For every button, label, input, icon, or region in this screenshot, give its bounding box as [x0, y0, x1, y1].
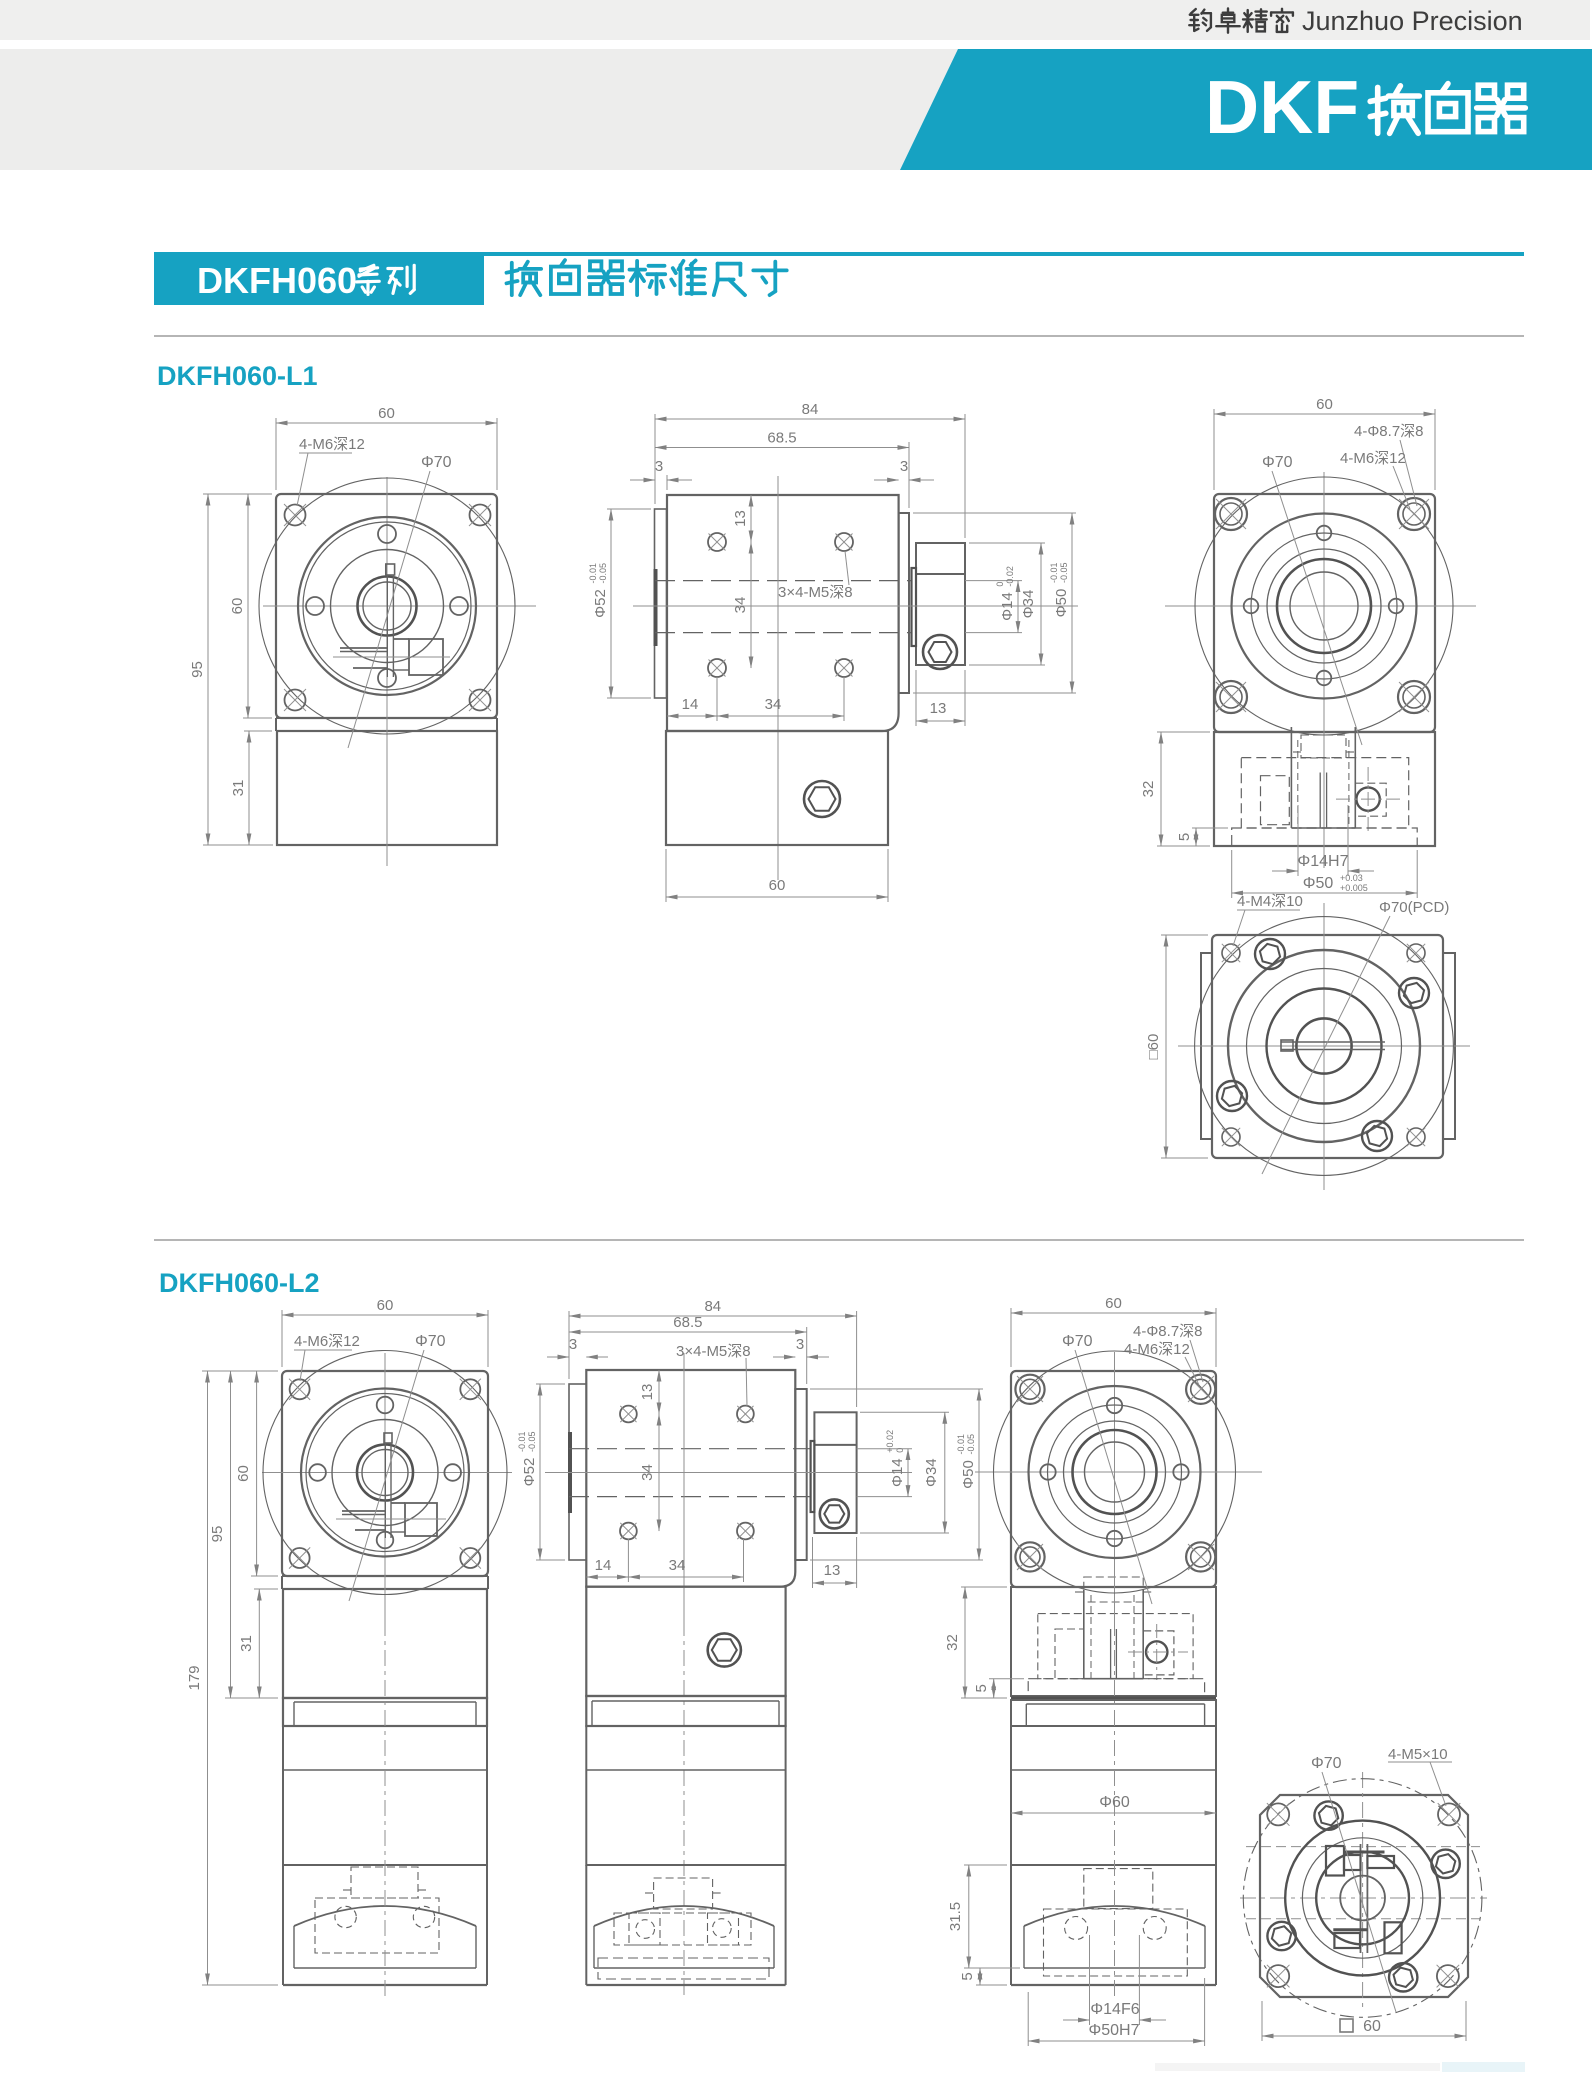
svg-text:Φ70: Φ70	[1311, 1755, 1342, 1772]
svg-text:+0.03: +0.03	[1340, 873, 1363, 883]
svg-text:4-M4深10: 4-M4深10	[1237, 893, 1303, 910]
svg-text:32: 32	[944, 1634, 961, 1651]
svg-text:Φ50H7: Φ50H7	[1088, 2022, 1139, 2039]
svg-text:32: 32	[1140, 781, 1157, 798]
svg-text:95: 95	[189, 661, 206, 678]
svg-text:-0.01: -0.01	[517, 1431, 527, 1452]
svg-text:34: 34	[765, 696, 782, 713]
svg-text:31: 31	[230, 780, 247, 797]
svg-text:4-M5×10: 4-M5×10	[1388, 1746, 1448, 1763]
svg-text:-0.01: -0.01	[956, 1434, 966, 1455]
svg-text:13: 13	[732, 510, 749, 527]
svg-text:4-Φ8.7深8: 4-Φ8.7深8	[1354, 423, 1424, 440]
svg-text:13: 13	[824, 1562, 841, 1579]
svg-text:68.5: 68.5	[673, 1314, 702, 1331]
svg-text:Φ14H7: Φ14H7	[1297, 853, 1348, 870]
svg-text:60: 60	[1105, 1295, 1122, 1312]
svg-text:60: 60	[378, 405, 395, 422]
svg-text:60: 60	[235, 1465, 252, 1482]
svg-text:Φ50: Φ50	[1053, 589, 1070, 618]
svg-text:84: 84	[704, 1298, 721, 1315]
svg-text:-0.01: -0.01	[1049, 562, 1059, 583]
svg-text:Φ50: Φ50	[960, 1460, 977, 1489]
svg-text:34: 34	[639, 1464, 656, 1481]
svg-text:3: 3	[796, 1336, 804, 1353]
svg-text:60: 60	[377, 1297, 394, 1314]
svg-text:13: 13	[639, 1384, 656, 1401]
svg-text:60: 60	[1363, 2018, 1381, 2035]
svg-text:-0.05: -0.05	[966, 1434, 976, 1455]
svg-text:34: 34	[669, 1557, 686, 1574]
svg-text:Φ70(PCD): Φ70(PCD)	[1379, 899, 1449, 916]
svg-text:Φ70: Φ70	[421, 454, 452, 471]
svg-text:Φ52: Φ52	[592, 589, 609, 618]
svg-text:4-M6深12: 4-M6深12	[1340, 450, 1406, 467]
svg-text:14: 14	[682, 696, 699, 713]
svg-text:DKFH060-L2: DKFH060-L2	[159, 1268, 320, 1298]
svg-text:DKFH060-L1: DKFH060-L1	[157, 361, 318, 391]
svg-text:34: 34	[732, 597, 749, 614]
svg-text:4-Φ8.7深8: 4-Φ8.7深8	[1133, 1323, 1203, 1340]
svg-text:Φ14F6: Φ14F6	[1090, 2001, 1139, 2018]
svg-text:-0.05: -0.05	[527, 1431, 537, 1452]
svg-text:Φ34: Φ34	[1020, 590, 1037, 619]
svg-text:60: 60	[1316, 396, 1333, 413]
svg-text:-0.02: -0.02	[1005, 566, 1015, 587]
svg-text:5: 5	[973, 1684, 990, 1692]
svg-text:Φ70: Φ70	[1062, 1333, 1093, 1350]
svg-text:Φ50: Φ50	[1303, 875, 1334, 892]
svg-text:13: 13	[930, 700, 947, 717]
svg-text:4-M6深12: 4-M6深12	[294, 1333, 360, 1350]
svg-text:68.5: 68.5	[767, 430, 796, 447]
svg-text:3: 3	[655, 458, 663, 475]
svg-text:84: 84	[802, 401, 819, 418]
svg-text:Φ60: Φ60	[1099, 1794, 1130, 1811]
svg-text:Φ70: Φ70	[1262, 454, 1293, 471]
svg-text:3: 3	[569, 1336, 577, 1353]
svg-text:0: 0	[995, 582, 1005, 587]
svg-text:3: 3	[900, 458, 908, 475]
svg-text:60: 60	[229, 598, 246, 615]
svg-text:Junzhuo Precision: Junzhuo Precision	[1302, 6, 1523, 36]
svg-text:5: 5	[1176, 833, 1193, 841]
svg-text:+0.005: +0.005	[1340, 883, 1368, 893]
svg-text:14: 14	[595, 1557, 612, 1574]
svg-text:5: 5	[959, 1972, 976, 1980]
svg-text:Φ34: Φ34	[923, 1458, 940, 1487]
svg-text:31: 31	[238, 1635, 255, 1652]
svg-text:95: 95	[209, 1526, 226, 1543]
svg-text:179: 179	[186, 1665, 203, 1690]
svg-text:Φ14: Φ14	[889, 1458, 906, 1487]
svg-text:-0.01: -0.01	[588, 563, 598, 584]
svg-text:31.5: 31.5	[947, 1902, 964, 1931]
svg-text:3×4-M5深8: 3×4-M5深8	[676, 1343, 751, 1360]
svg-text:4-M6深12: 4-M6深12	[1124, 1341, 1190, 1358]
svg-text:0: 0	[895, 1448, 905, 1453]
svg-text:Φ70: Φ70	[415, 1333, 446, 1350]
svg-text:60: 60	[769, 877, 786, 894]
svg-text:-0.05: -0.05	[598, 563, 608, 584]
svg-text:DKFH060: DKFH060	[197, 260, 357, 301]
svg-text:DKF: DKF	[1205, 65, 1359, 149]
svg-text:Φ52: Φ52	[521, 1458, 538, 1487]
svg-text:-0.05: -0.05	[1059, 562, 1069, 583]
svg-text:3×4-M5深8: 3×4-M5深8	[778, 584, 853, 601]
svg-text:4-M6深12: 4-M6深12	[299, 436, 365, 453]
svg-text:□60: □60	[1145, 1034, 1162, 1060]
svg-text:+0.02: +0.02	[885, 1430, 895, 1453]
svg-text:Φ14: Φ14	[999, 592, 1016, 621]
